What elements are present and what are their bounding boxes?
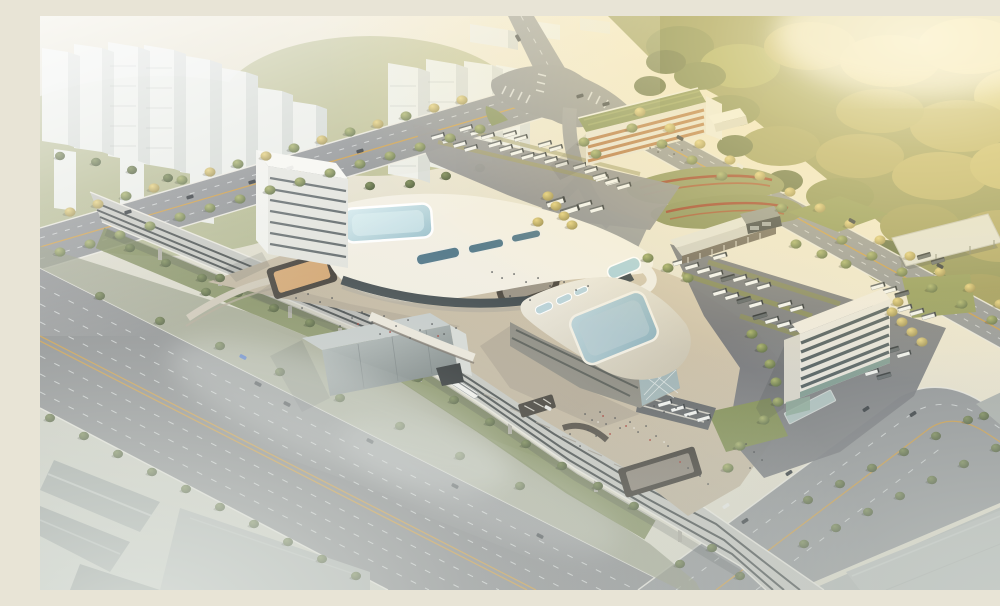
aerial-rendering	[40, 16, 1000, 590]
sun-haze	[40, 16, 1000, 590]
